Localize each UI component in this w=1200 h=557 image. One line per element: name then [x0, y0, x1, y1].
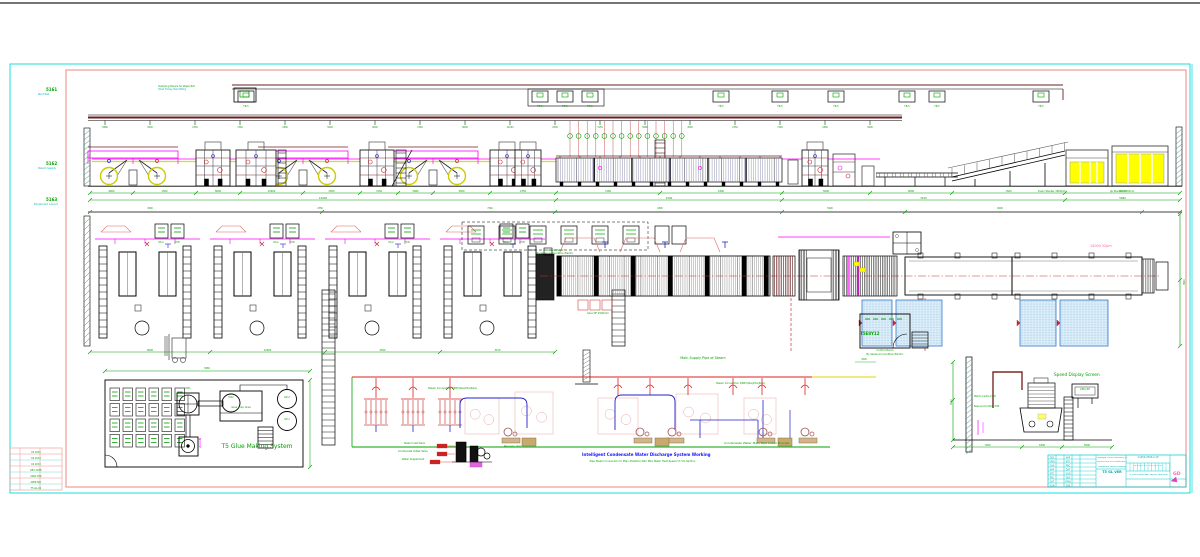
recovery-tank [456, 442, 466, 462]
cad-sheet: TR-5TR-5TR-5TR-5TR-5TR-5TR-5TR-5TR-5TR-5… [0, 0, 1200, 557]
cad-rect [854, 262, 859, 266]
starch-bag [136, 388, 146, 401]
rail-trolley [532, 91, 548, 102]
cad-line [583, 360, 590, 364]
cad-microtext: 12000 [319, 196, 328, 200]
cad-microtext: 1560 [161, 190, 168, 193]
trolley-bracket [528, 89, 604, 106]
grid-cell: DAT [1066, 468, 1071, 471]
cad-circle [250, 321, 264, 335]
cad-line [84, 254, 90, 260]
grid-cell: PRC [1066, 464, 1071, 467]
mill-roll-stand-beam [388, 151, 478, 158]
cad-rect [243, 93, 249, 97]
plan-label-box [401, 224, 414, 238]
board-stack [1070, 162, 1104, 183]
cad-rect [740, 182, 743, 186]
cad-rect [369, 179, 373, 186]
cad-microtext: PH-B [174, 241, 180, 244]
condensate-loop [460, 398, 527, 428]
cad-line [1176, 159, 1182, 164]
pump-base [502, 438, 520, 443]
cad-microtext: 12000 [264, 349, 272, 352]
recovery-tank [470, 446, 478, 462]
cad-line [84, 278, 90, 284]
cad-circle [916, 249, 919, 252]
starch-bag [123, 435, 133, 448]
cad-line [966, 429, 972, 434]
cad-line [966, 424, 972, 429]
cad-microtext: 9000 [108, 190, 115, 193]
starch-bag [123, 404, 133, 417]
panel-box [655, 226, 669, 244]
cad-rect [1038, 93, 1044, 97]
cad-circle [924, 173, 928, 177]
grid-cell: CHK [1066, 484, 1071, 487]
cad-rect [262, 179, 266, 186]
cad-microtext: TR-5 [718, 105, 724, 108]
cad-rect [1075, 387, 1095, 395]
display-bracket-pipe [993, 372, 1022, 408]
cad-line [84, 320, 90, 326]
cad-circle [135, 321, 149, 335]
cad-microtext: 7260 [777, 126, 783, 129]
cad-rect [614, 182, 617, 186]
cad-microtext: 8000 [215, 190, 222, 193]
cad-microtext: 4500 [458, 190, 465, 193]
plan-label-box [516, 224, 529, 238]
df-glue-box [578, 300, 588, 310]
cad-line [139, 160, 149, 176]
cad-rect [632, 182, 635, 186]
cad-rect [560, 182, 563, 186]
rev-row: T5-GL-01 [31, 487, 42, 490]
cad-rect [499, 142, 515, 150]
cad-line [966, 384, 972, 389]
pump [636, 428, 644, 436]
cad-microtext: 1560 [417, 126, 423, 129]
cad-microtext: 1560 [1005, 190, 1012, 193]
cad-line [966, 359, 972, 364]
panel-box [672, 226, 686, 244]
cad-line [84, 130, 90, 135]
cad-line [1176, 134, 1182, 139]
cad-circle [749, 409, 759, 419]
grid-cell: SGN [1050, 484, 1055, 487]
plan-label-box [171, 224, 184, 238]
cad-rect [522, 179, 526, 186]
machine-base [1020, 408, 1062, 432]
cad-microtext: 3150 [494, 349, 501, 352]
cad-microtext: PH-B [519, 241, 525, 244]
cad-path [859, 320, 862, 326]
cad-microtext: 7260 [605, 190, 612, 193]
cad-microtext: TR-5 [904, 105, 910, 108]
cad-path [446, 226, 476, 232]
cad-microtext: 3150 [597, 126, 603, 129]
machine-ghost [676, 394, 718, 434]
cad-rect [807, 142, 823, 150]
cad-line [439, 160, 449, 176]
cad-circle [940, 173, 944, 177]
cad-microtext: 12000 [268, 190, 276, 193]
cad-rect [205, 179, 209, 186]
cad-microtext: TR-5 [562, 105, 568, 108]
rail-trolley [1033, 91, 1049, 102]
cad-rect [246, 179, 250, 186]
cad-microtext: 2500 [379, 349, 386, 352]
cad-microtext: 1800 [1039, 444, 1046, 447]
cad-line [84, 145, 90, 150]
cad-microtext: 2350 [949, 399, 952, 405]
cad-microtext: PH-B [289, 241, 295, 244]
cad-rect [587, 93, 593, 97]
starch-bag [110, 388, 120, 401]
condensate-run [690, 420, 758, 438]
starch-bag [110, 404, 120, 417]
board-pallet [1020, 300, 1056, 346]
cad-rect [758, 182, 761, 186]
cad-circle [900, 173, 904, 177]
cad-microtext: 5600 [823, 190, 830, 193]
cad-line [966, 444, 972, 449]
rail-trolley [929, 91, 945, 102]
cad-rect [218, 179, 222, 186]
cad-line [84, 175, 90, 180]
cad-microtext: 9000 [372, 126, 378, 129]
board-pallet [862, 300, 892, 346]
cad-microtext: 5680 [412, 190, 419, 193]
glue-tank [278, 412, 297, 431]
glue-door-arc [105, 455, 117, 467]
cad-line [966, 419, 972, 424]
cad-microtext: 7260 [984, 444, 991, 447]
plan-label-box [286, 224, 299, 238]
panel-box [468, 226, 484, 244]
cad-microtext: 12000 [507, 126, 515, 129]
stand [862, 166, 874, 186]
cad-line [117, 160, 127, 176]
cad-microtext: RS-A [388, 241, 394, 244]
cad-line [84, 308, 90, 314]
machine-ghost [465, 398, 499, 434]
starch-bag [149, 435, 159, 448]
trap-box [778, 438, 792, 446]
mixer-wheel [222, 394, 240, 412]
cad-microtext: TR-5 [833, 105, 839, 108]
pre-df-unit [536, 254, 554, 300]
cad-rect [627, 238, 635, 242]
cad-circle [884, 173, 888, 177]
cad-path [893, 320, 896, 326]
cad-circle [838, 166, 842, 170]
cad-line [1176, 139, 1182, 144]
cad-line [966, 399, 972, 404]
cad-line [84, 290, 90, 296]
grid-cell: DAT [1050, 480, 1055, 483]
cad-microtext: 5680 [1119, 196, 1126, 200]
cad-microtext: 2500 [552, 126, 558, 129]
cad-microtext: TR-5 [243, 105, 249, 108]
cad-microtext: 3150 [376, 190, 383, 193]
cad-line [1176, 174, 1182, 179]
cad-microtext: 5600 [327, 126, 333, 129]
cad-rect [565, 238, 573, 242]
panel-box [561, 226, 577, 244]
cad-rect [248, 142, 264, 150]
grid-cell: DES [1050, 456, 1055, 459]
cad-circle [484, 415, 494, 425]
cad-rect [809, 179, 813, 186]
speed-screen-box [1072, 384, 1098, 398]
rev-row: APPR NO. [31, 481, 42, 484]
starch-bag [175, 404, 185, 417]
cad-line [84, 242, 90, 248]
grid-cell: DES [1066, 476, 1071, 479]
cad-circle [537, 412, 547, 422]
grid-cell: SGN [1066, 472, 1071, 475]
cad-line [84, 135, 90, 140]
cad-circle [896, 235, 899, 238]
cad-microtext: 9000 [908, 190, 915, 193]
cad-line [583, 356, 590, 360]
cad-microtext: 4500 [147, 126, 153, 129]
cad-line [84, 332, 90, 338]
cad-circle [470, 409, 480, 419]
starch-bag [123, 419, 133, 432]
access-ladder [1064, 397, 1073, 440]
rail-trolley [828, 91, 844, 102]
double-facer-elevation [556, 158, 782, 182]
cad-circle [700, 413, 710, 423]
cad-rect [722, 182, 725, 186]
cad-microtext: TR-5 [934, 105, 940, 108]
cad-microtext: 2350 [192, 126, 198, 129]
cad-line [966, 369, 972, 374]
cad-rect [686, 182, 689, 186]
callout-marker [437, 452, 447, 456]
cad-circle [876, 173, 880, 177]
cad-line [583, 372, 590, 376]
cad-line [1176, 149, 1182, 154]
grid-cell: APP [1050, 468, 1055, 471]
starch-bag [175, 419, 185, 432]
cad-microtext: 4500 [147, 207, 153, 210]
pump-base [799, 438, 817, 443]
cad-line [966, 404, 972, 409]
mill-roll-stand-beam [88, 151, 178, 158]
cad-circle [948, 173, 952, 177]
cad-circle [892, 173, 896, 177]
cad-microtext: 5600 [827, 207, 833, 210]
cad-line [417, 160, 427, 176]
cad-line [84, 248, 90, 254]
cad-rect [596, 238, 604, 242]
cad-line [84, 224, 90, 230]
cad-path [331, 226, 361, 232]
cad-microtext: 8000 [462, 126, 468, 129]
cad-microtext: 5600 [1084, 444, 1091, 447]
cad-rect [650, 182, 653, 186]
cad-rect [537, 93, 543, 97]
cad-rect [532, 179, 536, 186]
cad-line [966, 449, 972, 454]
plan-label-box [270, 224, 283, 238]
cad-rect [668, 182, 671, 186]
grid-cell: PRC [1050, 476, 1055, 479]
cad-microtext: 2500 [666, 196, 673, 200]
cad-circle [908, 173, 912, 177]
rail-trolley [557, 91, 573, 102]
cad-rect [480, 305, 486, 311]
cad-line [966, 389, 972, 394]
cad-circle [916, 173, 920, 177]
cad-line [84, 284, 90, 290]
cad-circle [1047, 421, 1053, 427]
cad-line [84, 230, 90, 236]
cad-line [583, 364, 590, 368]
cad-line [1176, 179, 1182, 184]
pump [801, 428, 809, 436]
cad-microtext: 2350 [317, 207, 323, 210]
grid-cell: CHK [1050, 464, 1055, 467]
starch-bag [149, 404, 159, 417]
callout-marker [430, 460, 440, 464]
cad-rect [499, 179, 503, 186]
cad-circle [521, 406, 531, 416]
cad-path [1017, 320, 1020, 326]
starch-bag [162, 435, 172, 448]
cad-microtext: 4500 [687, 126, 693, 129]
cad-line [84, 140, 90, 145]
cad-drawing: TR-5TR-5TR-5TR-5TR-5TR-5TR-5TR-5TR-5TR-5… [0, 0, 1200, 557]
cad-circle [810, 432, 814, 436]
cad-rect [860, 268, 865, 272]
cad-rect [833, 93, 839, 97]
grid-cell: APP [1066, 456, 1071, 459]
cad-line [966, 414, 972, 419]
cad-rect [299, 170, 307, 185]
cad-rect [934, 93, 940, 97]
panel-box [592, 226, 608, 244]
pump-base [757, 438, 775, 443]
panel-box [623, 226, 639, 244]
cad-rect [596, 182, 599, 186]
cad-circle [621, 415, 631, 425]
cad-microtext: TR-5 [1038, 105, 1044, 108]
cad-line [966, 409, 972, 414]
cad-line [84, 338, 90, 344]
cad-path [240, 385, 287, 391]
cad-circle [932, 173, 936, 177]
cad-microtext: 3150 [920, 196, 927, 200]
cad-rect [777, 93, 783, 97]
machine-ghost [598, 398, 638, 434]
trap-box [655, 438, 669, 446]
cad-rect [1034, 378, 1048, 383]
cad-rect [129, 170, 137, 185]
cad-line [84, 296, 90, 302]
cad-microtext: PH-B [404, 241, 410, 244]
cad-rect [250, 305, 256, 311]
cad-rect [776, 182, 779, 186]
starch-bag [162, 388, 172, 401]
cad-line [1176, 129, 1182, 134]
cad-line [966, 379, 972, 384]
cad-line [84, 314, 90, 320]
cad-line [84, 165, 90, 170]
cad-circle [187, 445, 190, 448]
trolley-main [234, 88, 256, 102]
cad-line [84, 326, 90, 332]
cad-microtext: TR-5 [777, 105, 783, 108]
logo-mark [1171, 477, 1177, 482]
cad-line [84, 302, 90, 308]
cad-line [84, 218, 90, 224]
df-glue-box [590, 300, 600, 310]
starch-bag [110, 419, 120, 432]
condensate-loop [615, 395, 675, 430]
cad-circle [480, 321, 494, 335]
cad-line [84, 260, 90, 266]
cad-microtext: 4500 [861, 358, 867, 361]
rail-trolley [238, 91, 254, 102]
rev-row: SIGN CHK [30, 475, 42, 478]
cad-circle [365, 321, 379, 335]
cad-line [287, 160, 297, 176]
cad-line [84, 170, 90, 175]
glue-tank [278, 390, 297, 409]
cad-rect [382, 179, 386, 186]
forklift [172, 338, 186, 358]
plan-label-box [385, 224, 398, 238]
starch-bag [175, 435, 185, 448]
rail-trolley [772, 91, 788, 102]
cad-line [309, 160, 319, 176]
cad-line [84, 266, 90, 272]
starch-bag [149, 388, 159, 401]
cad-microtext: 2350 [520, 190, 527, 193]
cad-microtext: 2350 [732, 126, 738, 129]
cad-line [1176, 144, 1182, 149]
cad-microtext: TR-5 [537, 105, 543, 108]
rev-row: REV DATE [30, 469, 42, 472]
cad-rect [704, 182, 707, 186]
cad-rect [135, 305, 141, 311]
cad-circle [645, 432, 649, 436]
cad-line [966, 374, 972, 379]
cad-rect [369, 142, 385, 150]
cad-path [216, 226, 246, 232]
recovery-pump [470, 462, 482, 467]
starch-bag [175, 388, 185, 401]
pump-base [634, 438, 652, 443]
plan-label-box [155, 224, 168, 238]
pump [668, 428, 676, 436]
cad-rect [788, 160, 798, 184]
cad-rect [904, 93, 910, 97]
starch-bag [136, 404, 146, 417]
cad-circle [605, 409, 615, 419]
cad-microtext: 8000 [1119, 190, 1126, 193]
starch-bag [136, 435, 146, 448]
rev-row: 01 2013 [31, 463, 41, 466]
cad-microtext: RS-A [503, 241, 509, 244]
cad-rect [578, 182, 581, 186]
cad-microtext: 1560 [1182, 279, 1185, 285]
grid-cell: DRW [1049, 460, 1055, 463]
rev-row: 02 2014 [31, 457, 41, 460]
